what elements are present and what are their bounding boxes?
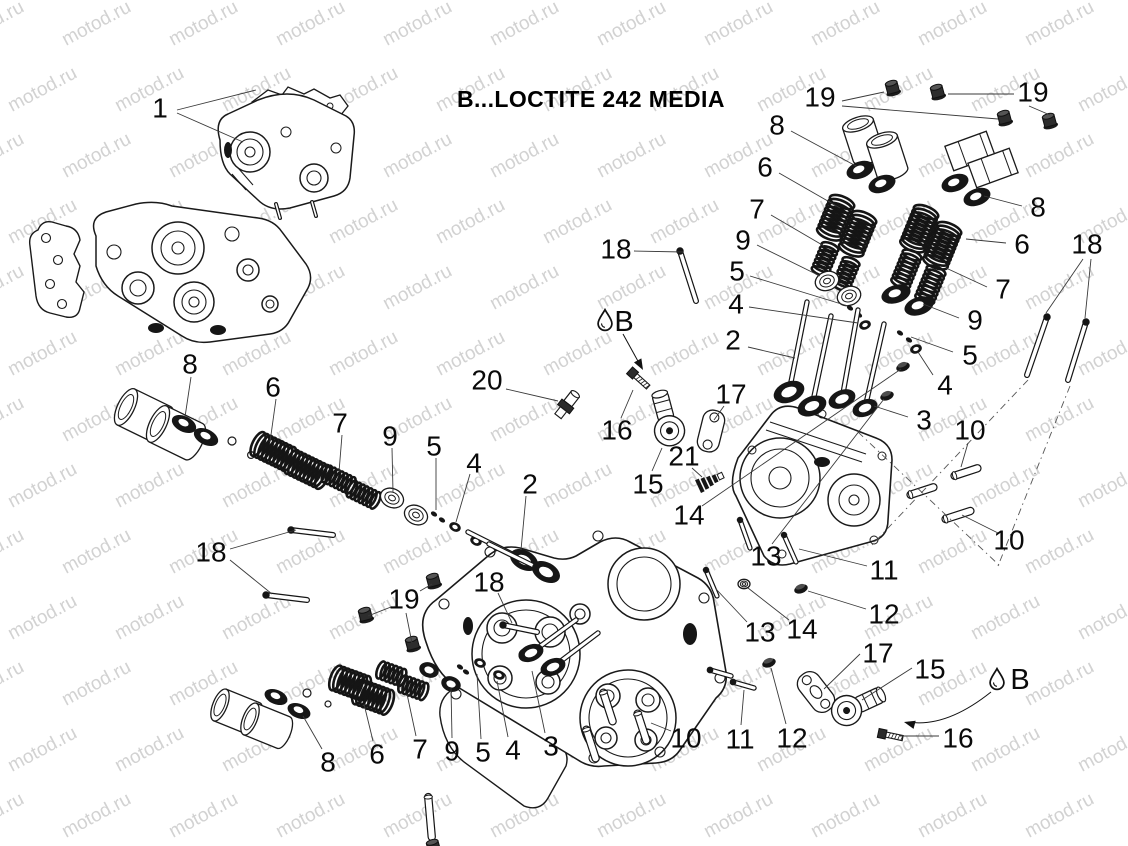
callout-label-7: 7 (412, 734, 428, 765)
callout-label-6: 6 (265, 372, 281, 403)
watermark-text: motod.ru (539, 327, 615, 381)
watermark-text: motod.ru (1021, 657, 1097, 711)
loctite-symbol-label: B (1010, 664, 1029, 696)
callout-label-16: 16 (601, 415, 632, 446)
callout-label-7: 7 (332, 408, 348, 439)
watermark-text: motod.ru (379, 525, 455, 579)
callout-label-19: 19 (1017, 77, 1048, 108)
watermark-text: motod.ru (272, 0, 348, 50)
leader-line (303, 716, 322, 749)
callout-label-16: 16 (942, 723, 973, 754)
watermark-text: motod.ru (58, 789, 134, 843)
watermark-text: motod.ru (1074, 591, 1128, 645)
bolt-illustration (877, 729, 903, 743)
watermark-text: motod.ru (1074, 723, 1128, 777)
watermark-text: motod.ru (4, 459, 80, 513)
callout-label-12: 12 (776, 723, 807, 754)
spring-seat-illustration (401, 501, 431, 528)
valve-cotter-illustration (438, 516, 446, 523)
callout-label-4: 4 (505, 735, 521, 766)
callout-label-11: 11 (869, 555, 898, 586)
watermark-text: motod.ru (432, 195, 508, 249)
callout-label-18: 18 (473, 567, 504, 598)
callout-label-12: 12 (868, 599, 899, 630)
washer-illustration (738, 579, 750, 588)
valve-seal-illustration (858, 319, 872, 332)
seal-illustration (448, 520, 463, 533)
watermark-text: motod.ru (486, 0, 562, 50)
watermark-text: motod.ru (379, 0, 455, 50)
dowel-pin-illustration (951, 464, 978, 480)
callout-label-5: 5 (962, 340, 978, 371)
flange-nut-illustration (995, 109, 1014, 128)
ball-illustration (228, 437, 236, 445)
watermark-text: motod.ru (1021, 0, 1097, 50)
watermark-text: motod.ru (111, 723, 187, 777)
callout-label-13: 13 (744, 617, 775, 648)
leader-line (984, 196, 1022, 206)
callout-label-4: 4 (466, 448, 482, 479)
ball-illustration (303, 689, 311, 697)
callout-label-4: 4 (937, 370, 953, 401)
bolt-illustration (627, 367, 652, 390)
spring-retainer-illustration (939, 170, 971, 195)
watermark-text: motod.ru (0, 0, 28, 50)
leader-line (634, 251, 683, 252)
callout-label-3: 3 (916, 405, 932, 436)
watermark-text: motod.ru (914, 525, 990, 579)
callout-label-11: 11 (725, 724, 754, 755)
watermark-text: motod.ru (593, 0, 669, 50)
callout-label-18: 18 (1071, 229, 1102, 260)
callout-label-4: 4 (728, 289, 744, 320)
watermark-text: motod.ru (111, 63, 187, 117)
watermark-text: motod.ru (272, 789, 348, 843)
watermark-text: motod.ru (0, 261, 28, 315)
flange-nut-illustration (424, 572, 443, 591)
watermark-text: motod.ru (1074, 459, 1128, 513)
callout-label-8: 8 (1030, 192, 1046, 223)
cylinder-head-assembly-mid-left (30, 202, 311, 342)
gasket-illustration (695, 408, 727, 454)
stud-illustration (676, 247, 696, 301)
watermark-text: motod.ru (807, 0, 883, 50)
watermark-text: motod.ru (58, 0, 134, 50)
callout-label-17: 17 (862, 638, 893, 669)
callout-label-19: 19 (388, 584, 419, 615)
watermark-text: motod.ru (1074, 63, 1128, 117)
callout-label-14: 14 (673, 500, 704, 531)
callout-label-5: 5 (475, 737, 491, 768)
flange-nut-illustration (928, 83, 947, 102)
leader-line (961, 443, 968, 467)
watermark-text: motod.ru (539, 459, 615, 513)
watermark-text: motod.ru (753, 195, 829, 249)
callout-label-5: 5 (729, 256, 745, 287)
valve-cotter-illustration (430, 510, 438, 517)
callout-label-18: 18 (195, 537, 226, 568)
callout-label-1: 1 (152, 93, 168, 124)
watermark-text: motod.ru (486, 129, 562, 183)
leader-line (185, 377, 191, 417)
watermark-text: motod.ru (593, 129, 669, 183)
callout-label-13: 13 (750, 541, 781, 572)
watermark-text: motod.ru (593, 789, 669, 843)
loctite-symbol-label: B (614, 306, 633, 338)
callout-label-6: 6 (1014, 229, 1030, 260)
watermark-text: motod.ru (325, 327, 401, 381)
watermark-text: motod.ru (646, 327, 722, 381)
watermark-text: motod.ru (0, 657, 28, 711)
leader-line (741, 690, 744, 725)
leader-line (716, 589, 747, 622)
callout-label-10: 10 (954, 415, 985, 446)
cylinder-head-bottom-view (423, 531, 727, 808)
callout-label-7: 7 (995, 274, 1011, 305)
watermark-text: motod.ru (967, 591, 1043, 645)
callout-label-19: 19 (804, 82, 835, 113)
watermark-text: motod.ru (967, 723, 1043, 777)
callout-label-10: 10 (670, 723, 701, 754)
watermark-text: motod.ru (0, 525, 28, 579)
leader-line (339, 435, 342, 472)
callout-label-8: 8 (769, 110, 785, 141)
flange-nut-illustration (424, 838, 443, 846)
watermark-text: motod.ru (914, 0, 990, 50)
watermark-text: motod.ru (4, 327, 80, 381)
callout-label-15: 15 (914, 654, 945, 685)
callout-label-14: 14 (786, 614, 817, 645)
flange-nut-illustration (403, 635, 422, 654)
leader-line (230, 560, 272, 594)
inner-valve-spring-illustration (890, 247, 923, 290)
oil-drop-icon (598, 310, 612, 331)
watermark-text: motod.ru (0, 129, 28, 183)
callout-label-17: 17 (715, 379, 746, 410)
watermark-text: motod.ru (0, 789, 28, 843)
plug-cap-illustration (793, 582, 809, 595)
callout-label-18: 18 (600, 234, 631, 265)
watermark-text: motod.ru (4, 591, 80, 645)
watermark-text: motod.ru (111, 459, 187, 513)
leader-line (748, 588, 789, 620)
parts-diagram-page: motod.rumotod.rumotod.rumotod.rumotod.ru… (0, 0, 1128, 846)
watermark-text: motod.ru (4, 723, 80, 777)
callout-label-7: 7 (749, 194, 765, 225)
watermark-text: motod.ru (379, 789, 455, 843)
watermark-text: motod.ru (0, 393, 28, 447)
callout-label-3: 3 (543, 731, 559, 762)
watermark-text: motod.ru (325, 723, 401, 777)
callout-label-8: 8 (320, 747, 336, 778)
leader-line (270, 399, 276, 442)
watermark-text: motod.ru (379, 261, 455, 315)
callout-label-21: 21 (668, 441, 699, 472)
watermark-text: motod.ru (486, 393, 562, 447)
watermark-text: motod.ru (325, 195, 401, 249)
callout-label-2: 2 (725, 325, 741, 356)
callout-label-9: 9 (382, 421, 398, 452)
leader-line (918, 352, 933, 375)
callout-label-10: 10 (993, 525, 1024, 556)
callout-label-15: 15 (632, 469, 663, 500)
watermark-text: motod.ru (914, 789, 990, 843)
arrowhead (903, 718, 916, 729)
watermark-text: motod.ru (58, 129, 134, 183)
leader-line (230, 530, 296, 549)
watermark-text: motod.ru (379, 129, 455, 183)
watermark-text: motod.ru (111, 327, 187, 381)
watermark-text: motod.ru (111, 591, 187, 645)
oil-drop-icon (990, 669, 1004, 690)
watermark-text: motod.ru (700, 0, 776, 50)
plug-cap-illustration (879, 389, 895, 402)
callout-label-8: 8 (182, 349, 198, 380)
watermark-text: motod.ru (58, 657, 134, 711)
watermark-text: motod.ru (1021, 789, 1097, 843)
watermark-text: motod.ru (58, 525, 134, 579)
watermark-text: motod.ru (700, 789, 776, 843)
watermark-text: motod.ru (165, 0, 241, 50)
watermark-text: motod.ru (1021, 393, 1097, 447)
callout-label-5: 5 (426, 431, 442, 462)
watermark-text: motod.ru (486, 261, 562, 315)
leader-line (771, 668, 786, 724)
watermark-text: motod.ru (1021, 525, 1097, 579)
callout-label-6: 6 (757, 152, 773, 183)
callout-label-2: 2 (522, 469, 538, 500)
watermark-text: motod.ru (4, 63, 80, 117)
spring-seat-illustration (377, 484, 407, 511)
callout-label-6: 6 (369, 739, 385, 770)
watermark-text: motod.ru (860, 723, 936, 777)
callout-label-9: 9 (967, 305, 983, 336)
callout-label-20: 20 (471, 365, 502, 396)
leader-line (392, 448, 393, 492)
watermark-text: motod.ru (646, 195, 722, 249)
page-title: B...LOCTITE 242 MEDIA (457, 86, 725, 113)
callout-label-9: 9 (735, 225, 751, 256)
valve-cotter-illustration (896, 329, 904, 336)
watermark-text: motod.ru (1021, 129, 1097, 183)
ball-illustration (325, 701, 331, 707)
diagram-canvas: motod.rumotod.rumotod.rumotod.rumotod.ru… (0, 0, 1128, 846)
watermark-text: motod.ru (807, 789, 883, 843)
watermark-text: motod.ru (165, 789, 241, 843)
leader-line (407, 694, 416, 736)
callout-label-9: 9 (444, 736, 460, 767)
